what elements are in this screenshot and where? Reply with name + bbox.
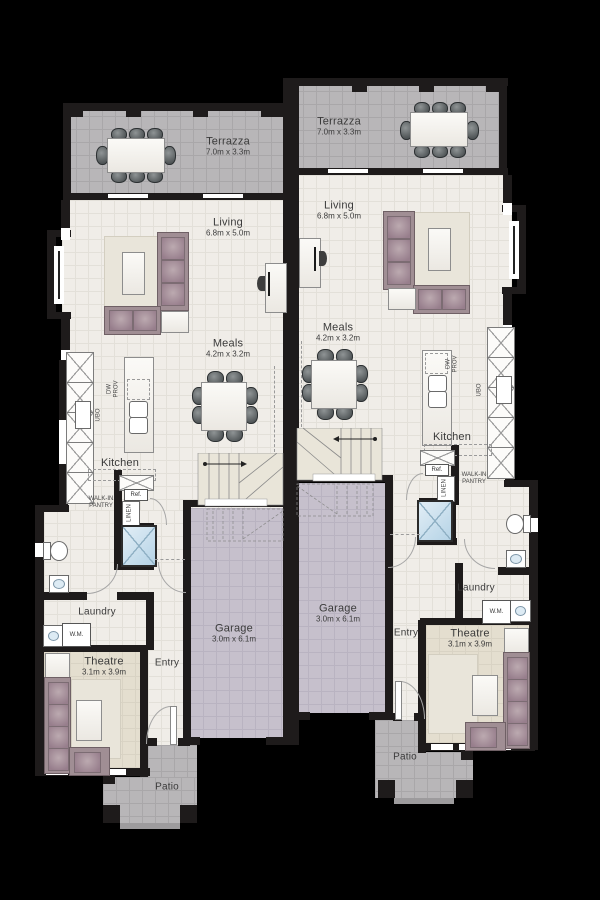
sofa <box>104 306 161 335</box>
tv-icon <box>314 247 316 271</box>
stairs-right <box>295 428 383 518</box>
cooktop-icon <box>496 376 512 404</box>
window-glass <box>58 251 60 299</box>
wall <box>455 563 463 625</box>
ubo-label-left: UBO <box>96 408 103 421</box>
overhead-dashed-line <box>274 366 276 452</box>
laundry-tub <box>510 600 531 622</box>
room-name: Living <box>317 200 361 212</box>
sliding-door <box>328 169 368 173</box>
kitchen-cabinet <box>66 352 94 384</box>
shower <box>121 525 157 567</box>
sofa <box>413 285 470 314</box>
sink <box>129 417 148 434</box>
patio-pillar <box>456 780 473 798</box>
front-door <box>170 706 177 745</box>
room-label-kitchen-left: Kitchen <box>101 457 139 469</box>
wall <box>63 110 71 194</box>
wall-garage <box>183 500 191 745</box>
sliding-door <box>423 169 463 173</box>
window <box>61 228 70 240</box>
washing-machine: W.M. <box>62 623 91 647</box>
wall <box>63 193 285 200</box>
theatre-sofa <box>503 652 530 749</box>
pantry-label-left: WALK-IN PANTRY <box>80 496 122 510</box>
fridge-label-text: Ref. <box>130 492 141 498</box>
ubo-label-right: UBO <box>477 383 484 396</box>
room-label-garage-right: Garage 3.0m x 6.1m <box>316 603 360 624</box>
basin <box>506 550 526 568</box>
fridge-label: Ref. <box>124 489 148 501</box>
wall <box>503 294 512 325</box>
side-table <box>161 311 189 333</box>
wm-label-text: W.M. <box>490 609 504 615</box>
pantry-label-right: WALK-IN PANTRY <box>453 472 495 486</box>
ottoman <box>76 700 102 741</box>
room-label-entry-left: Entry <box>155 658 179 669</box>
room-name: Garage <box>316 603 360 615</box>
party-wall <box>283 78 299 745</box>
toilet-icon <box>506 514 524 534</box>
window-glass <box>513 226 515 274</box>
room-dims: 3.1m x 3.9m <box>448 640 492 649</box>
basin <box>49 575 69 593</box>
fridge-label: Ref. <box>425 464 449 476</box>
wall-post <box>261 103 283 117</box>
linen-label: LINEN <box>442 479 449 497</box>
room-name: Terrazza <box>206 136 250 148</box>
sink <box>428 391 447 408</box>
room-name: Kitchen <box>433 431 471 443</box>
linen-label: LINEN <box>127 504 134 522</box>
room-name: Laundry <box>457 583 495 594</box>
wall-garage <box>385 475 393 720</box>
wall <box>503 175 512 203</box>
room-dims: 6.8m x 5.0m <box>317 212 361 221</box>
room-name: Garage <box>212 623 256 635</box>
sliding-door <box>203 194 243 198</box>
room-label-patio-right: Patio <box>393 752 417 763</box>
room-dims: 7.0m x 3.3m <box>206 148 250 157</box>
wall-post <box>293 712 310 720</box>
room-label-kitchen-right: Kitchen <box>433 431 471 443</box>
patio-pillar <box>103 805 120 823</box>
opening-dashed <box>155 559 185 561</box>
wall <box>47 312 71 319</box>
laundry-tub <box>43 625 64 647</box>
room-label-living-right: Living 6.8m x 5.0m <box>317 200 361 221</box>
wall <box>61 200 70 228</box>
patio-step <box>394 798 454 804</box>
wall-post <box>266 737 283 745</box>
wall-post <box>369 712 386 720</box>
room-label-terrazza-right: Terrazza 7.0m x 3.3m <box>317 116 361 137</box>
sofa <box>383 211 415 290</box>
sink <box>428 375 447 392</box>
room-dims: 3.0m x 6.1m <box>212 635 256 644</box>
wall <box>117 592 147 600</box>
room-label-patio-left: Patio <box>155 782 179 793</box>
fridge-label-text: Ref. <box>431 467 442 473</box>
tv-cabinet <box>45 653 70 680</box>
theatre-sofa <box>69 747 110 776</box>
tv-cabinet <box>504 628 529 655</box>
room-dims: 4.2m x 3.2m <box>316 334 360 343</box>
tv-unit <box>299 238 321 288</box>
room-dims: 7.0m x 3.3m <box>317 128 361 137</box>
wall-post <box>352 78 367 92</box>
room-name: Terrazza <box>317 116 361 128</box>
wall <box>502 287 526 294</box>
room-label-terrazza-left: Terrazza 7.0m x 3.3m <box>206 136 250 157</box>
opening-dashed <box>390 534 420 536</box>
room-name: Living <box>206 217 250 229</box>
room-label-theatre-left: Theatre 3.1m x 3.9m <box>82 656 126 677</box>
room-dims: 4.2m x 3.2m <box>206 350 250 359</box>
front-door <box>395 681 402 720</box>
wall <box>146 592 154 650</box>
window <box>431 744 453 750</box>
speaker-icon <box>257 276 265 291</box>
toilet-icon <box>50 541 68 561</box>
dw-prov-label-left: DW PROV <box>106 376 119 402</box>
ottoman <box>472 675 498 716</box>
dw-prov-label-right: DW PROV <box>445 351 458 377</box>
wall <box>63 103 285 111</box>
wall <box>61 319 70 350</box>
room-name: Patio <box>155 782 179 793</box>
wall <box>288 168 508 175</box>
sofa <box>157 232 189 311</box>
wm-label-text: W.M. <box>70 632 84 638</box>
room-label-entry-right: Entry <box>394 628 418 639</box>
room-name: Theatre <box>448 628 492 640</box>
sliding-door <box>108 194 148 198</box>
cooktop-icon <box>75 401 91 429</box>
coffee-table <box>122 252 145 295</box>
tv-icon <box>268 272 270 296</box>
toilet-tank <box>523 515 531 533</box>
stairs-left <box>197 453 285 543</box>
wall <box>418 620 426 753</box>
room-label-laundry-left: Laundry <box>78 607 116 618</box>
patio-step <box>120 823 180 829</box>
wall-post <box>419 78 434 92</box>
wall <box>35 592 87 600</box>
kitchen-cabinet <box>487 327 515 359</box>
wall <box>288 78 508 86</box>
room-name: Entry <box>155 658 179 669</box>
washing-machine: W.M. <box>482 600 511 624</box>
wall <box>35 645 44 775</box>
room-label-meals-left: Meals 4.2m x 3.2m <box>206 338 250 359</box>
room-name: Theatre <box>82 656 126 668</box>
outdoor-dining-table <box>410 112 468 147</box>
dishwasher-provision <box>127 379 150 400</box>
room-name: Laundry <box>78 607 116 618</box>
wall-post <box>178 738 190 746</box>
room-label-living-left: Living 6.8m x 5.0m <box>206 217 250 238</box>
room-dims: 6.8m x 5.0m <box>206 229 250 238</box>
shower <box>417 500 453 542</box>
wall-post <box>193 103 208 117</box>
wall <box>499 85 507 169</box>
overhead-dashed-line <box>301 341 303 427</box>
room-dims: 3.1m x 3.9m <box>82 668 126 677</box>
dining-table <box>311 360 357 409</box>
outdoor-dining-table <box>107 138 165 173</box>
room-label-garage-left: Garage 3.0m x 6.1m <box>212 623 256 644</box>
dining-table <box>201 382 247 431</box>
room-name: Entry <box>394 628 418 639</box>
patio-pillar <box>378 780 395 798</box>
coffee-table <box>428 228 451 271</box>
room-name: Kitchen <box>101 457 139 469</box>
wall <box>140 645 148 777</box>
patio-pillar <box>180 805 197 823</box>
room-label-meals-right: Meals 4.2m x 3.2m <box>316 322 360 343</box>
room-name: Patio <box>393 752 417 763</box>
wall-post <box>126 103 141 117</box>
room-name: Meals <box>316 322 360 334</box>
room-name: Meals <box>206 338 250 350</box>
room-label-theatre-right: Theatre 3.1m x 3.9m <box>448 628 492 649</box>
side-table <box>388 288 416 310</box>
window <box>503 203 512 215</box>
theatre-sofa <box>44 677 71 774</box>
room-label-laundry-right: Laundry <box>457 583 495 594</box>
wall <box>498 567 533 575</box>
floor-plan: Ref. LINEN W.M. Terrazza 7.0m x 3.3m Liv… <box>0 0 600 900</box>
speaker-icon <box>319 251 327 266</box>
theatre-sofa <box>465 722 506 751</box>
wall <box>529 620 538 750</box>
room-dims: 3.0m x 6.1m <box>316 615 360 624</box>
sink <box>129 401 148 418</box>
